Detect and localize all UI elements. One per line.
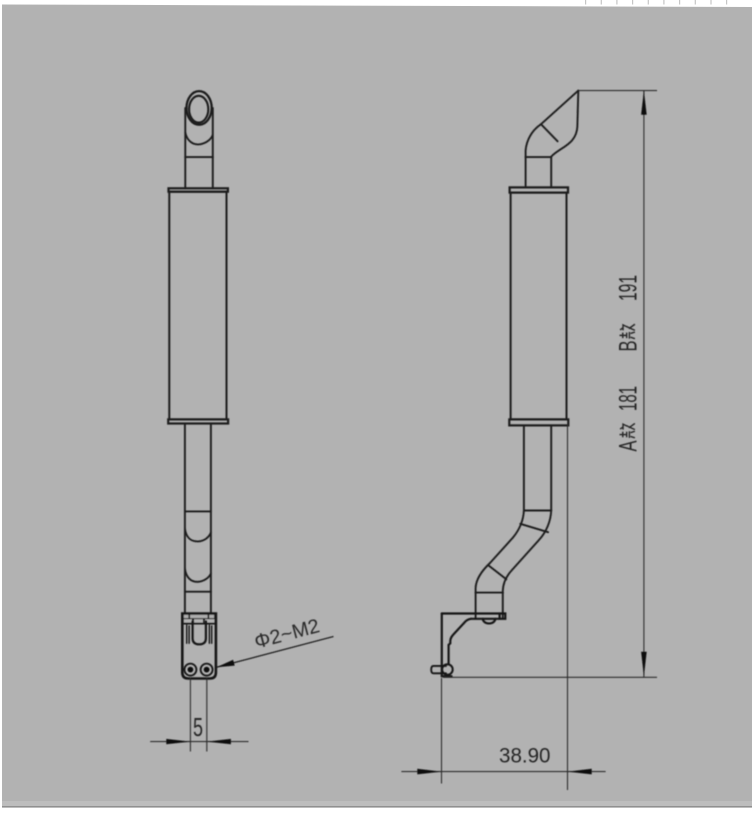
svg-text:A: A — [614, 440, 642, 451]
svg-text:38.90: 38.90 — [499, 744, 551, 768]
svg-text:181: 181 — [614, 386, 642, 411]
svg-text:191: 191 — [614, 275, 642, 301]
svg-text:5: 5 — [193, 712, 203, 742]
svg-text:B: B — [614, 341, 642, 352]
